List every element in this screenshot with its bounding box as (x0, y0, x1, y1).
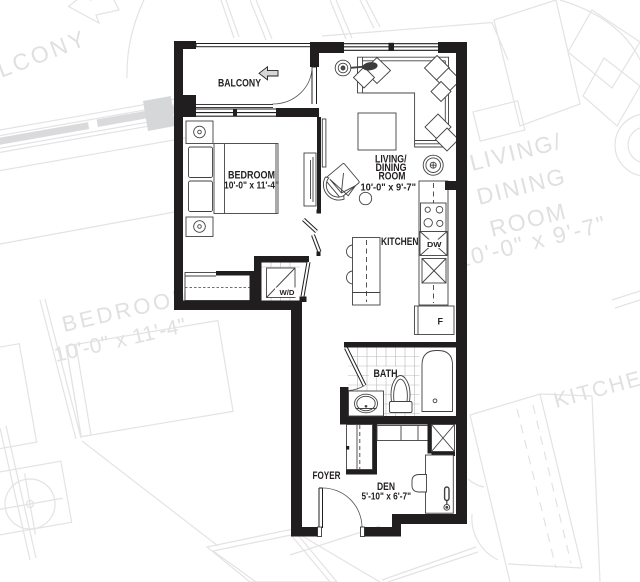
svg-text:10'-0" x 11'-4": 10'-0" x 11'-4" (224, 181, 279, 192)
svg-text:W/D: W/D (280, 288, 295, 297)
svg-text:BALCONY: BALCONY (218, 78, 262, 90)
svg-text:FOYER: FOYER (313, 470, 341, 482)
svg-text:BATH: BATH (374, 368, 398, 380)
svg-text:5'-10" x 6'-7": 5'-10" x 6'-7" (362, 492, 412, 503)
svg-text:BEDROOM: BEDROOM (228, 170, 275, 182)
svg-text:10'-0" x 9'-7": 10'-0" x 9'-7" (361, 183, 417, 194)
svg-text:DW: DW (427, 240, 442, 249)
svg-text:ROOM: ROOM (379, 170, 406, 182)
svg-text:F: F (438, 317, 444, 327)
svg-text:KITCHEN: KITCHEN (381, 236, 419, 248)
